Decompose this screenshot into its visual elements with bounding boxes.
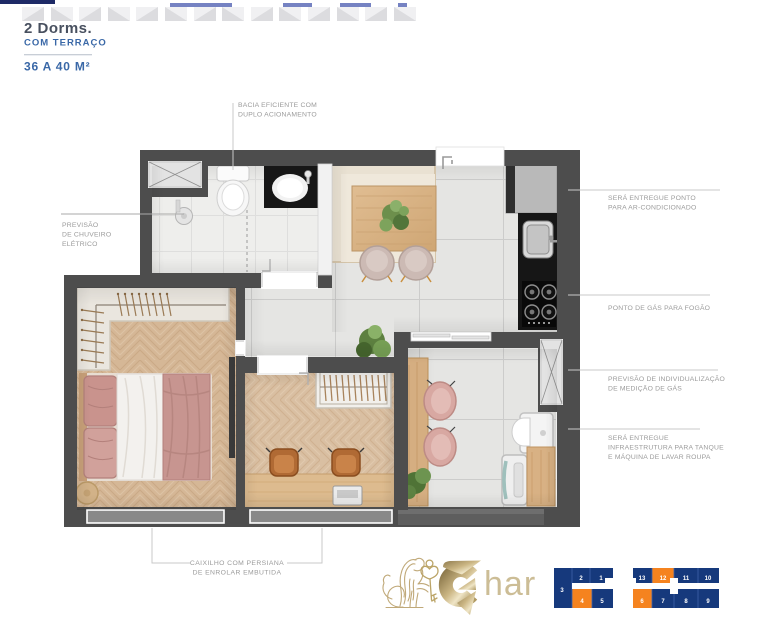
svg-text:PREVISÃO: PREVISÃO [62,220,98,229]
svg-text:PONTO DE GÁS PARA FOGÃO: PONTO DE GÁS PARA FOGÃO [608,303,710,312]
svg-text:DE MEDIÇÃO DE GÁS: DE MEDIÇÃO DE GÁS [608,384,682,393]
svg-text:11: 11 [683,576,690,582]
svg-text:PARA AR-CONDICIONADO: PARA AR-CONDICIONADO [608,205,696,212]
svg-text:INFRAESTRUTURA PARA TANQUE: INFRAESTRUTURA PARA TANQUE [608,445,724,452]
svg-text:ELÉTRICO: ELÉTRICO [62,239,98,248]
svg-text:SERÁ ENTREGUE PONTO: SERÁ ENTREGUE PONTO [608,193,696,202]
svg-text:DE ENROLAR EMBUTIDA: DE ENROLAR EMBUTIDA [193,570,282,577]
svg-text:DUPLO ACIONAMENTO: DUPLO ACIONAMENTO [238,112,317,119]
svg-text:PREVISÃO DE INDIVIDUALIZAÇÃO: PREVISÃO DE INDIVIDUALIZAÇÃO [608,374,725,383]
svg-text:COM TERRAÇO: COM TERRAÇO [24,38,107,49]
svg-text:SERÁ ENTREGUE: SERÁ ENTREGUE [608,433,669,442]
svg-text:E MÁQUINA DE LAVAR ROUPA: E MÁQUINA DE LAVAR ROUPA [608,452,711,461]
svg-text:2 Dorms.: 2 Dorms. [24,20,92,37]
svg-text:12: 12 [660,576,667,582]
svg-text:har: har [484,565,536,603]
svg-text:13: 13 [639,576,646,582]
svg-text:CAIXILHO COM PERSIANA: CAIXILHO COM PERSIANA [190,560,284,567]
svg-text:BACIA EFICIENTE COM: BACIA EFICIENTE COM [238,102,317,109]
svg-text:DE CHUVEIRO: DE CHUVEIRO [62,232,111,239]
svg-text:36 A 40 M²: 36 A 40 M² [24,60,90,74]
svg-text:10: 10 [705,576,712,582]
